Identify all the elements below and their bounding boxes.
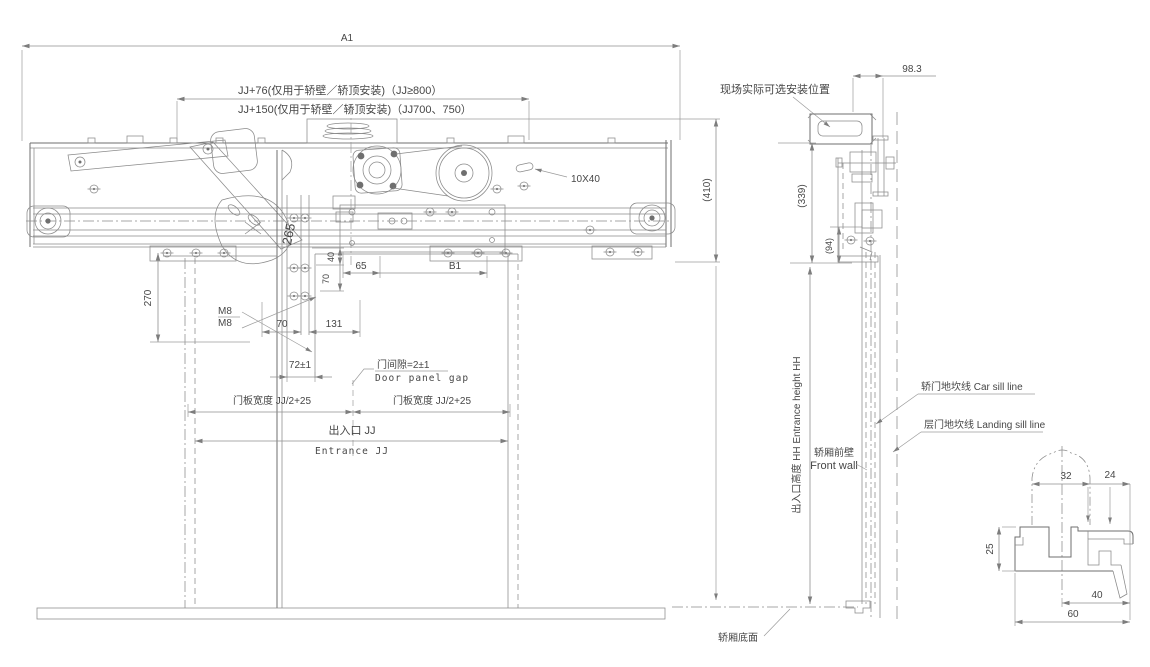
dim-72-text: 72±1 (289, 360, 312, 371)
dim-entrance-cn-text: 出入口 JJ (328, 423, 375, 437)
cad-drawing-elevator-door-operator: A1 JJ+76(仅用于轿壁／轿顶安装)（JJ≥800） JJ+150(仅用于轿… (0, 0, 1150, 667)
header-top-bolts (88, 136, 615, 143)
dim-65-text: 65 (355, 261, 367, 272)
dim-jj-mounting: JJ+76(仅用于轿壁／轿顶安装)（JJ≥800） JJ+150(仅用于轿壁／轿… (177, 83, 529, 140)
dim-32-text: 32 (1060, 471, 1072, 482)
label-install-position: 现场实际可选安装位置 (720, 82, 830, 127)
dim-339: (339) (778, 143, 852, 263)
belt-clamp-bolt (424, 208, 437, 216)
sill-detail-section: 32 24 25 40 60 (985, 446, 1133, 626)
dim-25: 25 (985, 527, 1016, 571)
label-gap-en-text: Door panel gap (375, 373, 469, 384)
dim-jj150-text: JJ+150(仅用于轿壁／轿顶安装)（JJ700、750） (238, 102, 472, 116)
dim-b1-text: B1 (449, 261, 462, 272)
dim-32: 32 (1032, 471, 1090, 522)
dim-131-text: 131 (326, 319, 343, 330)
label-m8-2-text: M8 (218, 318, 232, 329)
label-door-gap: 门间隙=2±1 Door panel gap (352, 358, 469, 384)
label-m8-1-text: M8 (218, 306, 232, 317)
label-10x40: 10X40 (535, 169, 600, 185)
dim-entrance-jj: 出入口 JJ Entrance JJ (195, 423, 508, 457)
wall-and-sill-lines (862, 112, 897, 620)
drawing-canvas: A1 JJ+76(仅用于轿壁／轿顶安装)（JJ≥800） JJ+150(仅用于轿… (0, 0, 1150, 667)
label-front-wall-cn-text: 轿厢前壁 (814, 446, 854, 459)
dim-jj76-text: JJ+76(仅用于轿壁／轿顶安装)（JJ≥800） (238, 83, 442, 97)
belt-clamp-bolt (446, 208, 459, 216)
dim-panel-right-text: 门板宽度 JJ/2+25 (393, 394, 472, 407)
label-car-sill-text: 轿门地坎线 Car sill line (921, 380, 1023, 393)
dim-entrance-height-hh: 出入口高度 HH Entrance height HH (790, 267, 810, 604)
front-view-door-operator: A1 JJ+76(仅用于轿壁／轿顶安装)（JJ≥800） JJ+150(仅用于轿… (22, 33, 858, 619)
dim-60: 60 (1015, 573, 1130, 626)
label-landing-sill-line: 层门地坎线 Landing sill line (893, 418, 1046, 452)
label-car-sill-line: 轿门地坎线 Car sill line (876, 380, 1035, 424)
dim-hh-text: 出入口高度 HH Entrance height HH (790, 356, 803, 513)
sill-profile (1015, 527, 1133, 598)
dim-339-text: (339) (797, 184, 808, 207)
dim-983: 98.3 (853, 64, 936, 138)
dim-70a-text: 70 (276, 319, 288, 330)
label-install-text: 现场实际可选安装位置 (720, 82, 830, 96)
label-landing-sill-text: 层门地坎线 Landing sill line (924, 418, 1046, 431)
dim-25-text: 25 (985, 543, 996, 555)
car-floor-bar (37, 607, 858, 619)
dim-60-text: 60 (1067, 609, 1079, 620)
dim-410: (410) (400, 119, 720, 600)
label-front-wall: 轿厢前壁 Front wall (810, 446, 867, 472)
label-10x40-text: 10X40 (571, 174, 600, 185)
dim-24-text: 24 (1104, 470, 1116, 481)
label-car-bottom-text: 轿厢底面 (718, 631, 758, 644)
door-gib-outline (1032, 446, 1090, 598)
label-car-bottom: 轿厢底面 (718, 609, 790, 644)
dim-panel-left-text: 门板宽度 JJ/2+25 (233, 394, 312, 407)
label-front-wall-en-text: Front wall (810, 460, 858, 472)
header-top-box (307, 119, 397, 143)
dim-40-text: 40 (326, 252, 336, 262)
dim-40-70-vertical: 40 70 (312, 248, 344, 291)
dim-983-text: 98.3 (902, 64, 922, 75)
optional-install-box (808, 114, 876, 144)
dim-40-text: 40 (1091, 590, 1103, 601)
dim-270: 270 (143, 253, 250, 342)
dim-410-text: (410) (702, 178, 713, 201)
dim-panel-width-left: 门板宽度 JJ/2+25 (188, 394, 353, 417)
dim-72: 72±1 (270, 360, 332, 382)
end-pulley-left (27, 206, 70, 237)
side-view-section: 98.3 现场实际可选安装位置 (339) (94) (718, 64, 1046, 644)
dim-a1-text: A1 (341, 33, 354, 44)
dim-70b-text: 70 (321, 274, 331, 284)
door-hangers (88, 185, 653, 261)
dim-94-text: (94) (824, 238, 834, 254)
dim-entrance-en-text: Entrance JJ (315, 446, 389, 457)
slot-10x40-glyph (516, 162, 534, 190)
dim-270-text: 270 (143, 289, 154, 306)
dim-65-b1: 65 B1 (343, 252, 487, 278)
label-gap-cn-text: 门间隙=2±1 (377, 358, 430, 371)
